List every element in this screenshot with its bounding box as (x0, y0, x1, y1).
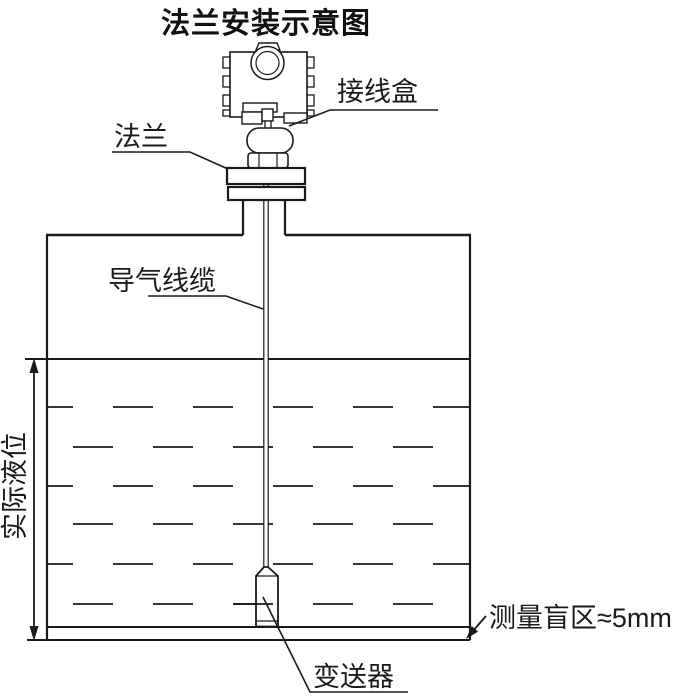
blind-zone-label: 测量盲区≈5mm (489, 603, 672, 633)
transmitter-probe (233, 567, 278, 627)
rib (223, 95, 230, 106)
arrowhead-up (30, 358, 39, 373)
rib (307, 110, 314, 116)
head-bottom-step (284, 113, 307, 123)
hex-nut (248, 153, 288, 168)
flange-installation-diagram: 法兰安装示意图 接线盒 法兰 导气线缆 实际液位 变送器 测量盲区≈5mm (0, 0, 700, 700)
rib (307, 76, 314, 87)
nozzle-collar (228, 187, 305, 200)
terminal-block-right (262, 109, 273, 121)
rib (223, 57, 230, 68)
air-cable-label: 导气线缆 (108, 266, 216, 296)
junction-box-head (223, 43, 314, 168)
transmitter-label: 变送器 (313, 662, 394, 692)
flange-plate (227, 168, 305, 184)
dome-inner-glass (256, 52, 279, 75)
leader-flange (112, 152, 228, 169)
air-guide-cable (264, 184, 268, 568)
terminal-block-left (242, 112, 262, 124)
tank-outline (25, 235, 471, 640)
leader-air-cable (148, 296, 263, 309)
rib (307, 95, 314, 106)
junction-box-label: 接线盒 (337, 77, 418, 107)
diagram-title: 法兰安装示意图 (161, 6, 371, 40)
head-ribs-left (223, 57, 230, 116)
flange-label: 法兰 (114, 122, 168, 152)
rib (223, 76, 230, 87)
head-ribs-right (307, 57, 314, 116)
diagram-canvas: 法兰安装示意图 接线盒 法兰 导气线缆 实际液位 变送器 测量盲区≈5mm (0, 0, 700, 700)
cable-body (264, 184, 268, 568)
arrowhead-down (30, 626, 39, 641)
connection-body (247, 128, 293, 153)
level-dimension-arrow (30, 358, 39, 641)
rib (223, 110, 230, 116)
actual-level-label: 实际液位 (0, 432, 30, 540)
rib (307, 57, 314, 68)
